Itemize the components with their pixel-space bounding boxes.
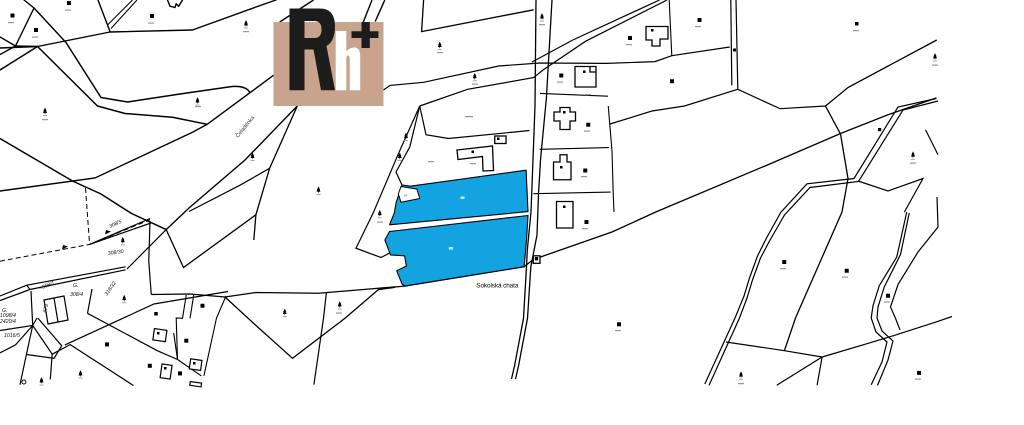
svg-text:2420/4: 2420/4 xyxy=(0,319,16,325)
svg-text:1016/5: 1016/5 xyxy=(4,333,20,339)
svg-text:Sokolská chata: Sokolská chata xyxy=(476,283,518,290)
svg-text:G.: G. xyxy=(73,283,78,289)
svg-text:308/4: 308/4 xyxy=(70,292,83,298)
